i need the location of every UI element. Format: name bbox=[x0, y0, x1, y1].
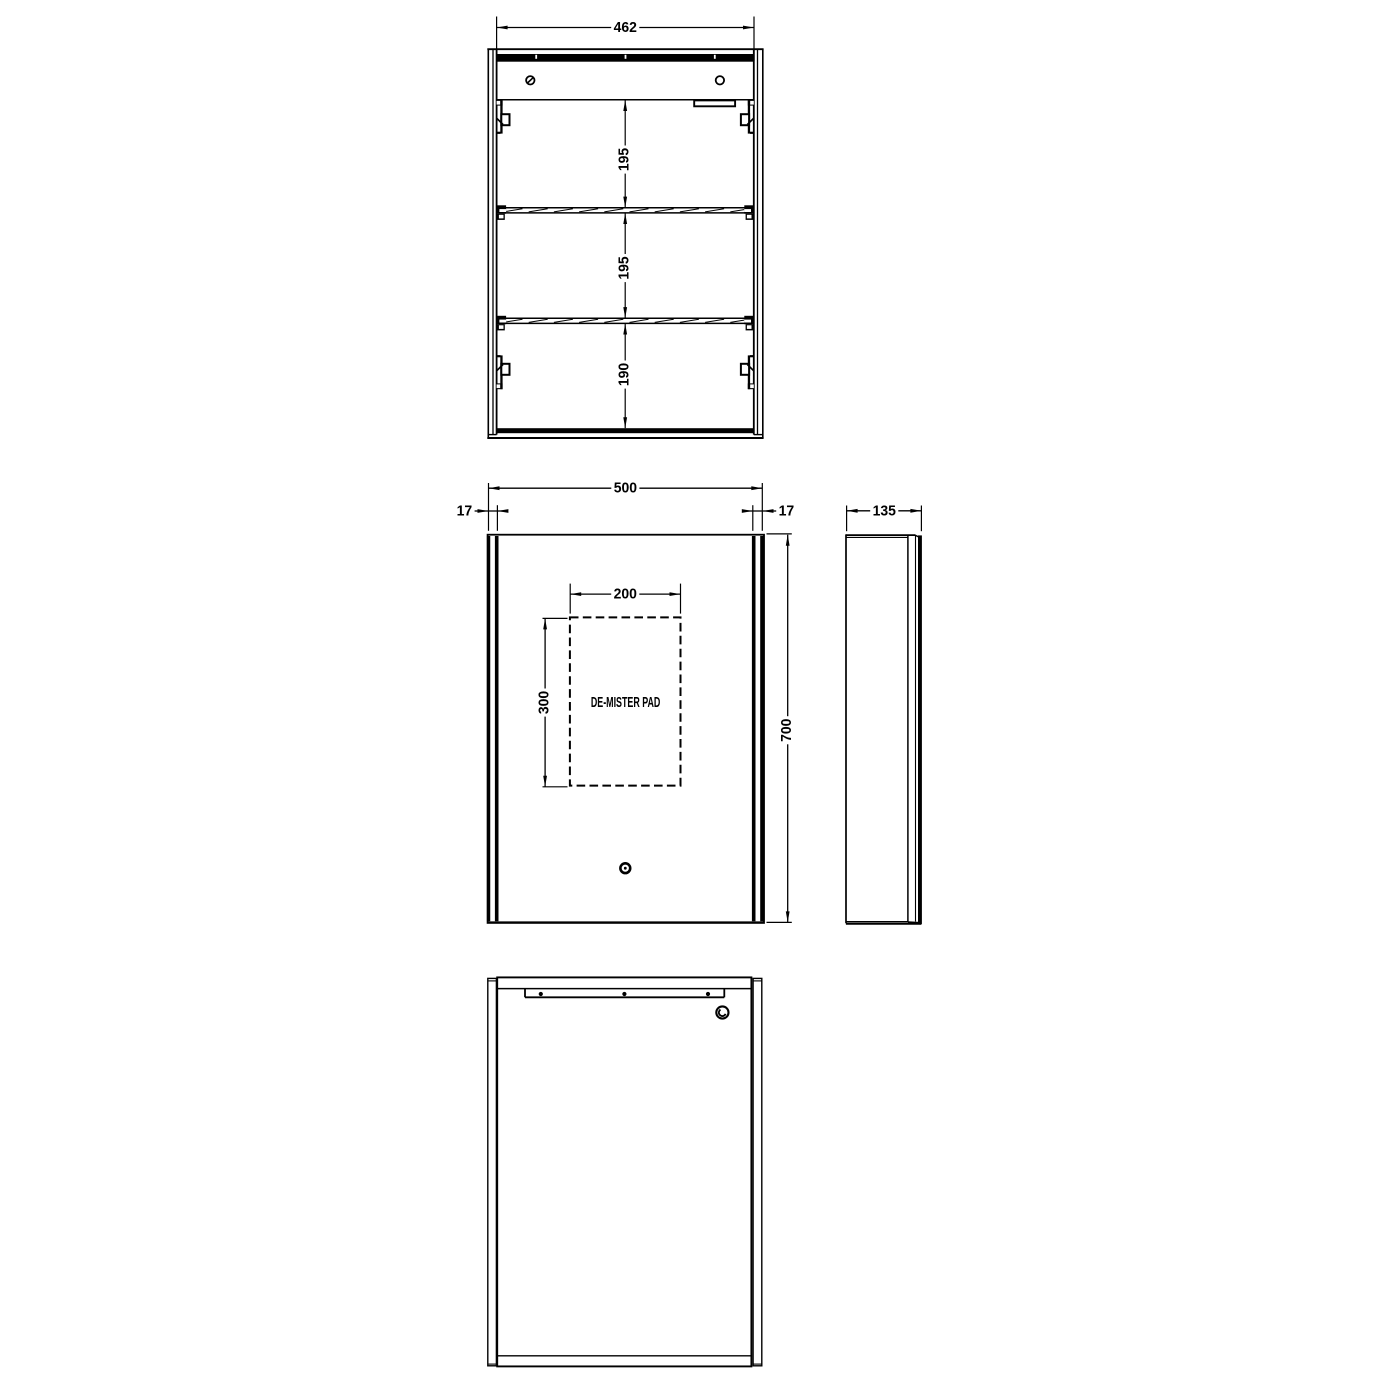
svg-text:462: 462 bbox=[614, 19, 637, 36]
svg-text:190: 190 bbox=[616, 363, 633, 386]
svg-text:135: 135 bbox=[873, 502, 897, 519]
svg-text:700: 700 bbox=[778, 719, 795, 742]
svg-text:DE-MISTER PAD: DE-MISTER PAD bbox=[591, 694, 661, 711]
svg-text:195: 195 bbox=[616, 147, 633, 171]
svg-text:17: 17 bbox=[779, 503, 795, 520]
svg-text:17: 17 bbox=[457, 503, 473, 520]
svg-text:500: 500 bbox=[614, 480, 637, 497]
svg-text:195: 195 bbox=[616, 256, 633, 280]
svg-text:300: 300 bbox=[536, 691, 553, 714]
svg-text:200: 200 bbox=[614, 586, 637, 603]
